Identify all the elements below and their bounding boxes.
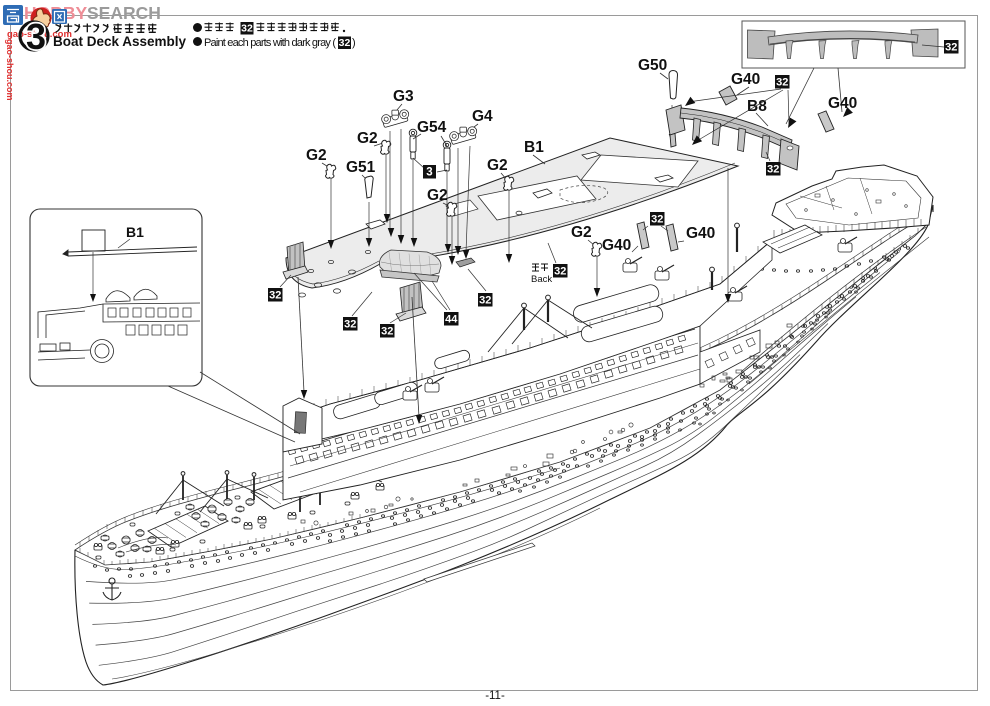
svg-text:G40: G40	[686, 225, 715, 242]
svg-text:G40: G40	[828, 95, 857, 112]
svg-text:32: 32	[479, 295, 491, 307]
svg-text:G2: G2	[571, 224, 592, 241]
svg-text:32: 32	[339, 37, 351, 49]
svg-text:G51: G51	[346, 159, 376, 176]
svg-text:G3: G3	[393, 88, 414, 105]
svg-text:gao-shou.com: gao-shou.com	[5, 39, 15, 101]
svg-text:B1: B1	[126, 224, 144, 240]
svg-text:3: 3	[426, 167, 432, 179]
svg-text:32: 32	[241, 23, 253, 35]
svg-text:3: 3	[26, 16, 46, 57]
svg-text:Boat Deck Assembly: Boat Deck Assembly	[53, 34, 187, 49]
svg-text:32: 32	[767, 164, 779, 176]
svg-text:SEARCH: SEARCH	[87, 3, 161, 23]
svg-text:B1: B1	[524, 139, 544, 156]
svg-text:G40: G40	[731, 71, 760, 88]
svg-text:44: 44	[445, 314, 458, 326]
svg-text:32: 32	[554, 266, 566, 278]
svg-text:32: 32	[651, 214, 663, 226]
svg-text:G50: G50	[638, 57, 667, 74]
svg-text:32: 32	[269, 290, 281, 302]
svg-text:32: 32	[344, 319, 356, 331]
svg-text:G4: G4	[472, 108, 493, 125]
svg-text:G2: G2	[487, 157, 508, 174]
svg-text:G2: G2	[306, 147, 327, 164]
svg-text:Paint each parts with dark gra: Paint each parts with dark gray (	[204, 37, 336, 49]
svg-text:32: 32	[776, 77, 788, 89]
svg-text:G2: G2	[427, 187, 448, 204]
svg-text:-11-: -11-	[485, 690, 505, 701]
svg-text:G40: G40	[602, 237, 631, 254]
svg-text:G2: G2	[357, 130, 378, 147]
svg-text:B8: B8	[747, 98, 767, 115]
svg-text:G54: G54	[417, 119, 447, 136]
svg-text:32: 32	[381, 326, 393, 338]
svg-text:): )	[352, 37, 356, 49]
svg-text:Back: Back	[531, 274, 552, 285]
svg-text:32: 32	[945, 42, 957, 54]
